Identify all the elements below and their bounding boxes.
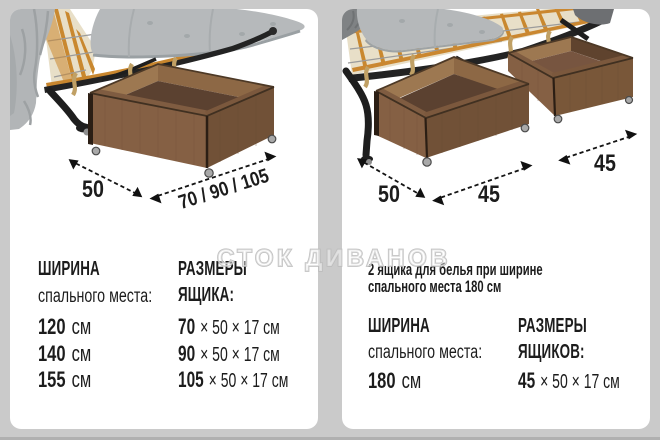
- svg-text:СТОК ДИВАНОВ: СТОК ДИВАНОВ: [217, 245, 451, 272]
